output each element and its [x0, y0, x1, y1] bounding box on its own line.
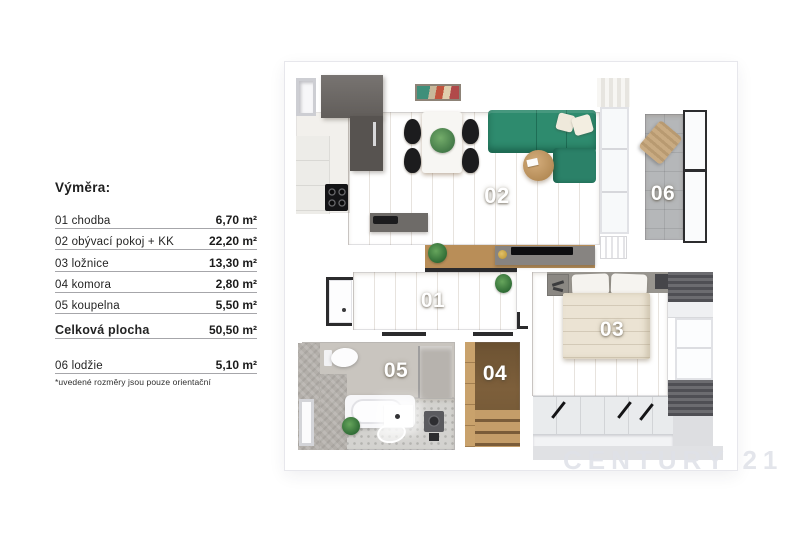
room-area-label: 05 koupelna: [55, 300, 120, 312]
storage-shelf-side: [465, 342, 475, 447]
room-area-label: 04 komora: [55, 279, 111, 291]
room-area-value: 22,20 m²: [209, 234, 257, 248]
cabinet-handle: [373, 122, 376, 146]
room-area-label: 01 chodba: [55, 215, 111, 227]
legend-row: 03 ložnice 13,30 m²: [55, 250, 257, 271]
total-label: Celková plocha: [55, 323, 150, 337]
bedroom-door-frame: [517, 326, 528, 329]
total-value: 50,50 m²: [209, 323, 257, 337]
bathroom-threshold: [382, 332, 426, 336]
room-area-value: 5,50 m²: [216, 298, 257, 312]
legend-row: 04 komora 2,80 m²: [55, 272, 257, 293]
room-number-living: 02: [477, 183, 517, 209]
legend-total-row: Celková plocha 50,50 m²: [55, 320, 257, 339]
room-area-label: 03 ložnice: [55, 258, 109, 270]
radiator: [600, 236, 627, 259]
legend-row: 02 obývací pokoj + KK 22,20 m²: [55, 229, 257, 250]
watermark: CENTURY 21: [563, 445, 783, 476]
room-number-hallway: 01: [413, 289, 453, 313]
legend-row: 01 chodba 6,70 m²: [55, 208, 257, 229]
floor-plan: 02 06 01 05 04 03: [285, 62, 737, 470]
entrance-door-frame: [326, 323, 352, 326]
curtain: [597, 78, 630, 107]
storage-shelves: [475, 410, 520, 447]
window-blinds: [668, 272, 713, 302]
legend-disclaimer: *uvedené rozměry jsou pouze orientační: [55, 377, 257, 387]
loggia-window: [683, 110, 707, 243]
storage-threshold: [473, 332, 513, 336]
legend-rows: 01 chodba 6,70 m² 02 obývací pokoj + KK …: [55, 208, 257, 314]
table-plant: [430, 128, 455, 153]
loggia-value: 5,10 m²: [216, 358, 257, 372]
dining-chair: [404, 148, 421, 173]
room-area-value: 6,70 m²: [216, 213, 257, 227]
wall-niche: [296, 78, 316, 116]
room-area-value: 13,30 m²: [209, 256, 257, 270]
faucet: [395, 414, 400, 419]
room-number-bedroom: 03: [592, 318, 632, 344]
bedroom-window: [675, 318, 713, 380]
shower-enclosure: [418, 346, 452, 398]
cooktop: [325, 184, 348, 211]
washing-machine: [424, 411, 444, 432]
legend-loggia-row: 06 lodžie 5,10 m²: [55, 355, 257, 374]
kitchen-cabinet-column: [350, 116, 383, 171]
room-number-bathroom: 05: [376, 359, 416, 383]
room-number-loggia: 06: [642, 182, 684, 206]
room-area-value: 2,80 m²: [216, 277, 257, 291]
area-legend: Výměra: 01 chodba 6,70 m² 02 obývací pok…: [55, 180, 257, 387]
hallway-plant: [495, 274, 512, 293]
entrance-door-leaf: [329, 280, 352, 323]
bathroom-niche: [299, 399, 314, 446]
table-lamp: [498, 250, 507, 259]
washer-hose: [429, 433, 439, 441]
floor-plant: [428, 243, 447, 263]
window-blinds: [668, 380, 713, 416]
dining-chair: [404, 119, 421, 144]
tv: [511, 247, 573, 255]
stone-ledge: [320, 374, 347, 450]
legend-title: Výměra:: [55, 180, 257, 195]
legend-row: 05 koupelna 5,50 m²: [55, 293, 257, 314]
bathroom-plant: [342, 417, 360, 435]
dining-chair: [462, 148, 479, 173]
sofa-chaise: [553, 148, 596, 183]
dining-chair: [462, 119, 479, 144]
room-area-label: 02 obývací pokoj + KK: [55, 236, 174, 248]
dresser-box: [655, 274, 668, 289]
kitchen-tall-cabinet: [321, 75, 383, 118]
kitchen-sink: [373, 216, 398, 224]
room-number-storage: 04: [475, 362, 515, 386]
loggia-label: 06 lodžie: [55, 360, 103, 372]
door-handle: [342, 308, 346, 312]
living-room-window: [600, 107, 629, 234]
roman-shade: [668, 302, 713, 318]
wall-picture: [415, 84, 461, 101]
